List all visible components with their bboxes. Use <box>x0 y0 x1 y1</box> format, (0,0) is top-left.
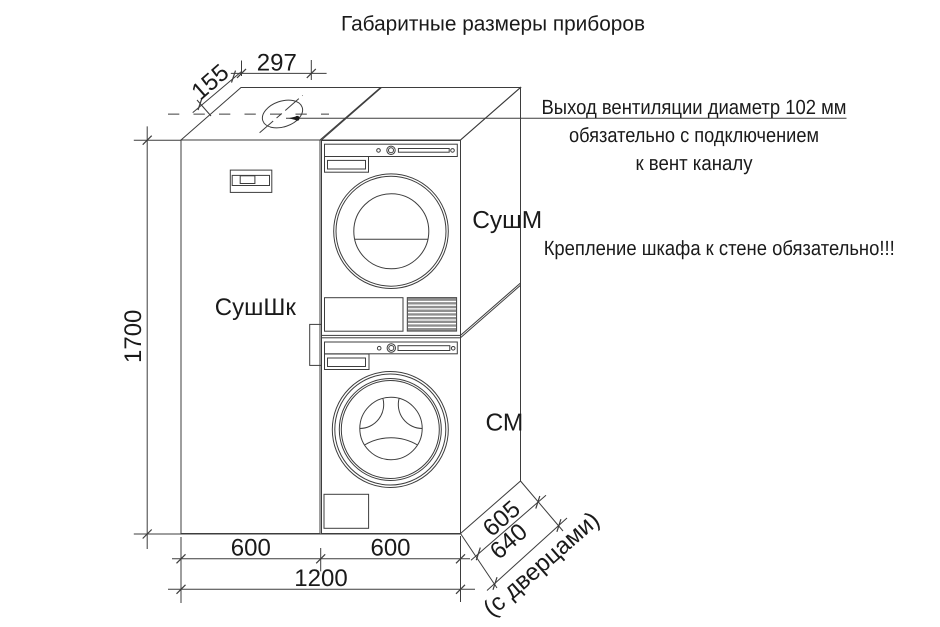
svg-text:1700: 1700 <box>120 310 147 363</box>
svg-text:СМ: СМ <box>486 410 524 437</box>
svg-text:600: 600 <box>370 535 410 562</box>
svg-text:СушШк: СушШк <box>215 294 297 321</box>
svg-text:Крепление шкафа к стене обязат: Крепление шкафа к стене обязательно!!! <box>544 237 895 260</box>
svg-text:600: 600 <box>231 535 271 562</box>
svg-text:297: 297 <box>257 50 297 77</box>
svg-text:СушМ: СушМ <box>472 207 542 234</box>
svg-text:Габаритные размеры приборов: Габаритные размеры приборов <box>341 13 645 36</box>
svg-text:обязательно с подключением: обязательно с подключением <box>569 124 819 147</box>
svg-text:1200: 1200 <box>294 565 347 592</box>
svg-text:Выход вентиляции диаметр 102 м: Выход вентиляции диаметр 102 мм <box>542 96 847 119</box>
svg-text:к вент каналу: к вент каналу <box>636 152 754 175</box>
